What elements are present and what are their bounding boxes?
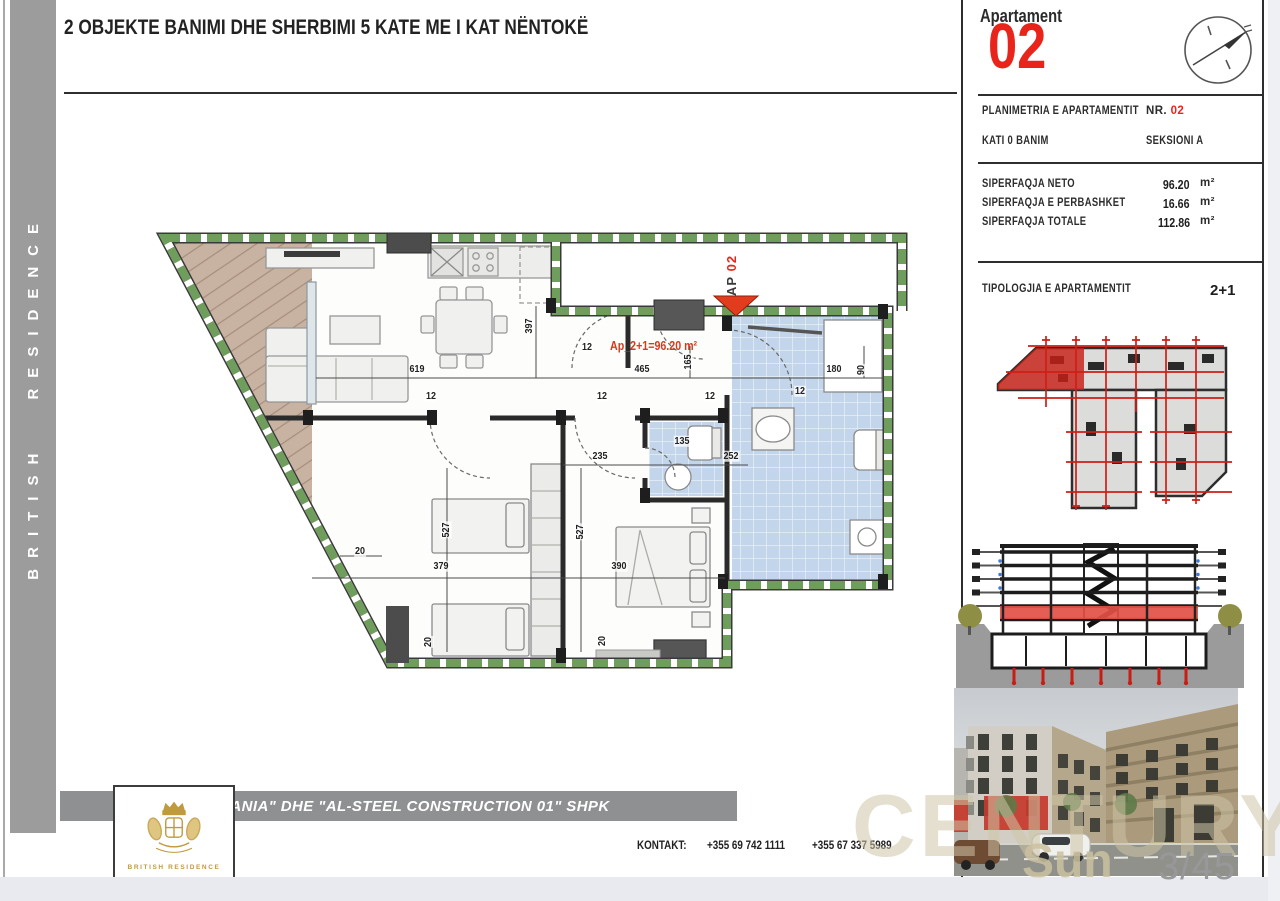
section-figure: [956, 536, 1244, 688]
red-accent: [984, 796, 1048, 830]
pillow: [690, 532, 706, 564]
tree: [1115, 793, 1137, 815]
floor-plan-drawing: [0, 0, 960, 901]
plan-row-label: PLANIMETRIA E APARTAMENTIT: [982, 105, 1173, 117]
chair: [466, 287, 483, 300]
area-neto-label: SIPERFAQJA NETO: [982, 178, 1095, 190]
pillow: [506, 503, 524, 547]
area-totale-value: 112.86: [1128, 215, 1190, 230]
tree: [958, 604, 982, 628]
plan-sheet: BRITISH RESIDENCE 2 OBJEKTE BANIMI DHE S…: [0, 0, 1280, 901]
bottom-margin-strip: [0, 877, 1280, 901]
royal-crest-icon: [139, 800, 209, 862]
panel-right-border: [1262, 0, 1264, 877]
chair: [440, 355, 457, 368]
area-perbashket-unit: m²: [1200, 196, 1215, 208]
chair: [466, 355, 483, 368]
structural-column: [386, 606, 409, 663]
entrance-marker-label: AP 02: [724, 248, 739, 296]
chair: [421, 316, 434, 333]
tree: [1063, 793, 1081, 811]
plan-row-nr: NR. 02: [1146, 105, 1184, 117]
contact-label: KONTAKT:: [637, 838, 697, 852]
brand-logo: BRITISH RESIDENCE: [113, 785, 235, 886]
key-plan-figure: [988, 332, 1236, 514]
floor-row-section: SEKSIONI A: [1146, 135, 1216, 147]
right-margin-strip: [1268, 0, 1280, 901]
panel-rule: [978, 162, 1262, 164]
contact-phone-2: +355 67 337 5989: [812, 838, 909, 852]
entrance-door: [654, 300, 704, 330]
pillow: [506, 608, 524, 650]
washing-machine: [850, 520, 884, 554]
north-compass-icon: [1180, 12, 1256, 88]
area-totale-label: SIPERFAQJA TOTALE: [982, 216, 1109, 228]
shaft-block: [387, 233, 431, 253]
apartment-number: 02: [988, 16, 1059, 77]
tv: [284, 251, 340, 257]
wc-toilet: [688, 426, 714, 460]
chair: [494, 316, 507, 333]
wardrobe: [531, 464, 563, 656]
area-totale-unit: m²: [1200, 215, 1215, 227]
coffee-table: [330, 316, 380, 344]
panel-rule: [978, 94, 1262, 96]
typology-label: TIPOLOGJIA E APARTAMENTIT: [982, 283, 1164, 295]
floor-row-label: KATI 0 BANIM: [982, 135, 1063, 147]
shower: [824, 320, 882, 392]
chair: [440, 287, 457, 300]
kitchen-stove: [468, 248, 498, 276]
contact-phone-1: +355 69 742 1111: [707, 838, 802, 852]
apartment-area-label: Ap_2+1=96.20 m²: [610, 338, 716, 353]
sink: [756, 416, 790, 442]
car: [954, 840, 1000, 864]
typology-value: 2+1: [1210, 282, 1235, 299]
nightstand: [692, 612, 710, 627]
area-neto-value: 96.20: [1128, 177, 1190, 192]
area-perbashket-value: 16.66: [1128, 196, 1190, 211]
tree: [1218, 604, 1242, 628]
dining-table: [436, 300, 492, 354]
company-name: "BRITANIA" DHE "AL-STEEL CONSTRUCTION 01…: [187, 798, 609, 815]
sofa-seat: [266, 356, 408, 402]
pillow: [690, 570, 706, 602]
page-number: 3/45: [1158, 846, 1236, 889]
wc-sink: [665, 464, 691, 490]
logo-text: BRITISH RESIDENCE: [128, 864, 221, 871]
nightstand: [692, 508, 710, 523]
area-neto-unit: m²: [1200, 177, 1215, 189]
tree: [995, 795, 1017, 817]
terrace-window: [307, 282, 316, 404]
panel-rule: [978, 261, 1262, 263]
